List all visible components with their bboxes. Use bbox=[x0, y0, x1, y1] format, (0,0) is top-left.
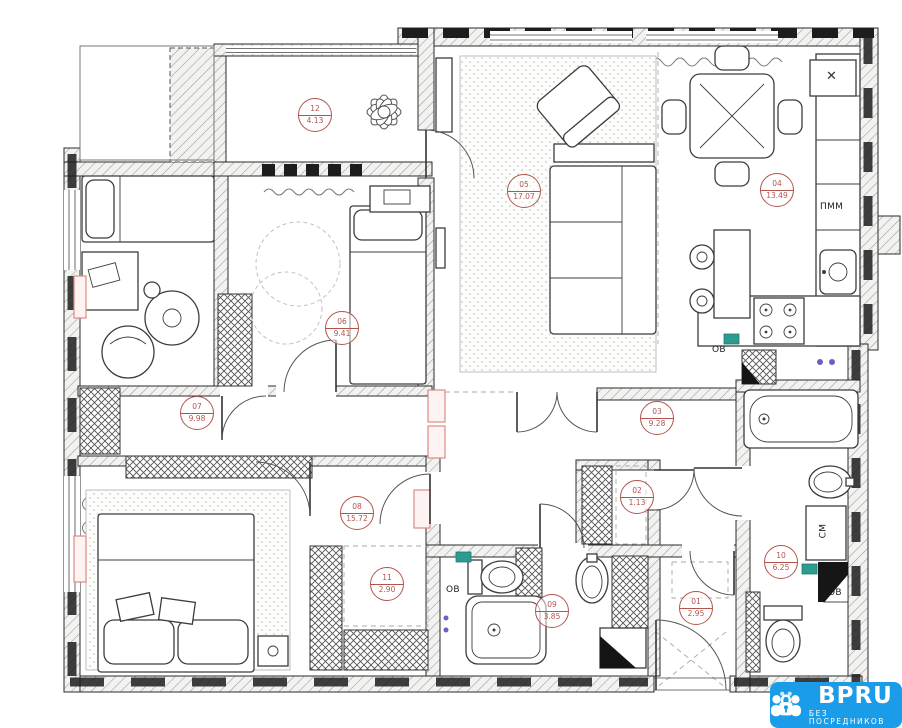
bpru-logo-text: BPRU БЕЗ ПОСРЕДНИКОВ bbox=[809, 685, 902, 725]
bathtub bbox=[744, 390, 858, 448]
sofa bbox=[550, 166, 656, 334]
vanity-wedge bbox=[600, 628, 646, 668]
floorplan-page: 01 2.95 02 1.13 03 9.28 04 13.49 05 17.0… bbox=[0, 0, 902, 728]
sink-09 bbox=[576, 554, 608, 603]
room-marker-12: 12 4.13 bbox=[298, 98, 332, 132]
tv-bracket bbox=[436, 228, 445, 268]
toilet-09 bbox=[468, 560, 523, 594]
stove bbox=[754, 298, 804, 344]
room-area: 6.25 bbox=[765, 563, 797, 573]
room-area: 13.49 bbox=[761, 191, 793, 201]
room-marker-02: 02 1.13 bbox=[620, 480, 654, 514]
nightstand bbox=[258, 636, 288, 666]
room-marker-01: 01 2.95 bbox=[679, 591, 713, 625]
fixture-dot bbox=[817, 359, 823, 365]
room-number: 12 bbox=[299, 104, 331, 115]
room-area: 2.95 bbox=[680, 609, 712, 619]
room-area: 1.13 bbox=[621, 498, 653, 508]
room-area: 15.72 bbox=[341, 514, 373, 524]
room-number: 03 bbox=[641, 407, 673, 418]
bar-stool bbox=[690, 289, 714, 313]
bpru-tagline: БЕЗ ПОСРЕДНИКОВ bbox=[809, 710, 902, 725]
vent-label-bath10: ОВ bbox=[828, 588, 842, 598]
vent-label-bath09: ОВ bbox=[446, 585, 460, 595]
tv-console bbox=[126, 456, 312, 478]
fixture-dot bbox=[829, 359, 835, 365]
room-number: 11 bbox=[371, 573, 403, 584]
room-number: 06 bbox=[326, 317, 358, 328]
room-area: 3.85 bbox=[536, 612, 568, 622]
toilet-10 bbox=[764, 606, 802, 662]
bed-room06 bbox=[350, 206, 426, 384]
hall-cabinet bbox=[80, 388, 120, 454]
floorplan-canvas bbox=[0, 0, 902, 728]
room-number: 08 bbox=[341, 502, 373, 513]
desk-room06 bbox=[370, 186, 430, 212]
daybed-left-room bbox=[82, 176, 214, 242]
room-marker-09: 09 3.85 bbox=[535, 594, 569, 628]
close-glyph: ✕ bbox=[826, 69, 837, 84]
shelf-unit bbox=[436, 58, 452, 132]
bed-master bbox=[98, 514, 254, 672]
room-number: 10 bbox=[765, 551, 797, 562]
wardrobe-11-left bbox=[310, 546, 342, 670]
room-marker-08: 08 15.72 bbox=[340, 496, 374, 530]
wc-cabinet bbox=[612, 556, 648, 628]
room-marker-03: 03 9.28 bbox=[640, 401, 674, 435]
wardrobe-room06 bbox=[218, 294, 252, 386]
dishwasher-label: ПММ bbox=[820, 202, 843, 212]
bpru-logo[interactable]: BPRU БЕЗ ПОСРЕДНИКОВ bbox=[770, 682, 902, 728]
desk-left-room bbox=[82, 252, 138, 310]
room-area: 4.13 bbox=[299, 116, 331, 126]
plant bbox=[367, 95, 401, 129]
wardrobe-11-bottom bbox=[344, 630, 428, 670]
room-area: 9.41 bbox=[326, 329, 358, 339]
room-marker-06: 06 9.41 bbox=[325, 311, 359, 345]
vent-label-kitchen: ОВ bbox=[712, 345, 726, 355]
shower-tray bbox=[466, 596, 546, 664]
dining-table bbox=[690, 74, 774, 158]
washing-machine-label: СМ bbox=[818, 524, 828, 539]
fixture-dot bbox=[444, 628, 449, 633]
room-number: 09 bbox=[536, 600, 568, 611]
room-number: 02 bbox=[621, 486, 653, 497]
room-marker-10: 10 6.25 bbox=[764, 545, 798, 579]
room-number: 05 bbox=[508, 180, 540, 191]
fixture-dot bbox=[444, 616, 449, 621]
bar-counter bbox=[690, 230, 750, 318]
room-marker-11: 11 2.90 bbox=[370, 567, 404, 601]
room-area: 17.07 bbox=[508, 192, 540, 202]
room-number: 01 bbox=[680, 597, 712, 608]
room-area: 9.98 bbox=[181, 414, 213, 424]
room-marker-05: 05 17.07 bbox=[507, 174, 541, 208]
room-marker-04: 04 13.49 bbox=[760, 173, 794, 207]
bath10-shaft bbox=[746, 592, 760, 672]
kitchen-sink bbox=[820, 250, 856, 294]
room-area: 2.90 bbox=[371, 585, 403, 595]
bpru-brand: BPRU bbox=[818, 685, 893, 708]
sink-10 bbox=[809, 466, 854, 498]
room-number: 04 bbox=[761, 179, 793, 190]
bar-stool bbox=[690, 245, 714, 269]
bpru-people-lock-icon bbox=[770, 689, 802, 721]
room-area: 9.28 bbox=[641, 419, 673, 429]
room-number: 07 bbox=[181, 402, 213, 413]
closet-02-shelves bbox=[582, 466, 612, 544]
room-marker-07: 07 9.98 bbox=[180, 396, 214, 430]
